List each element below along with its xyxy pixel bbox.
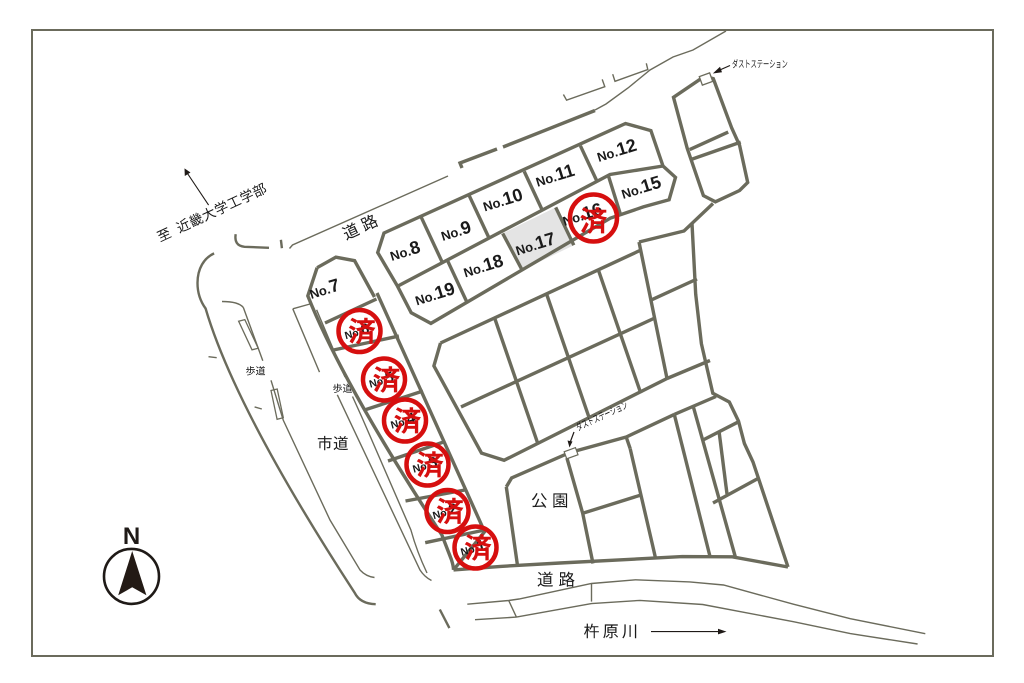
svg-text:N: N [123,523,140,550]
